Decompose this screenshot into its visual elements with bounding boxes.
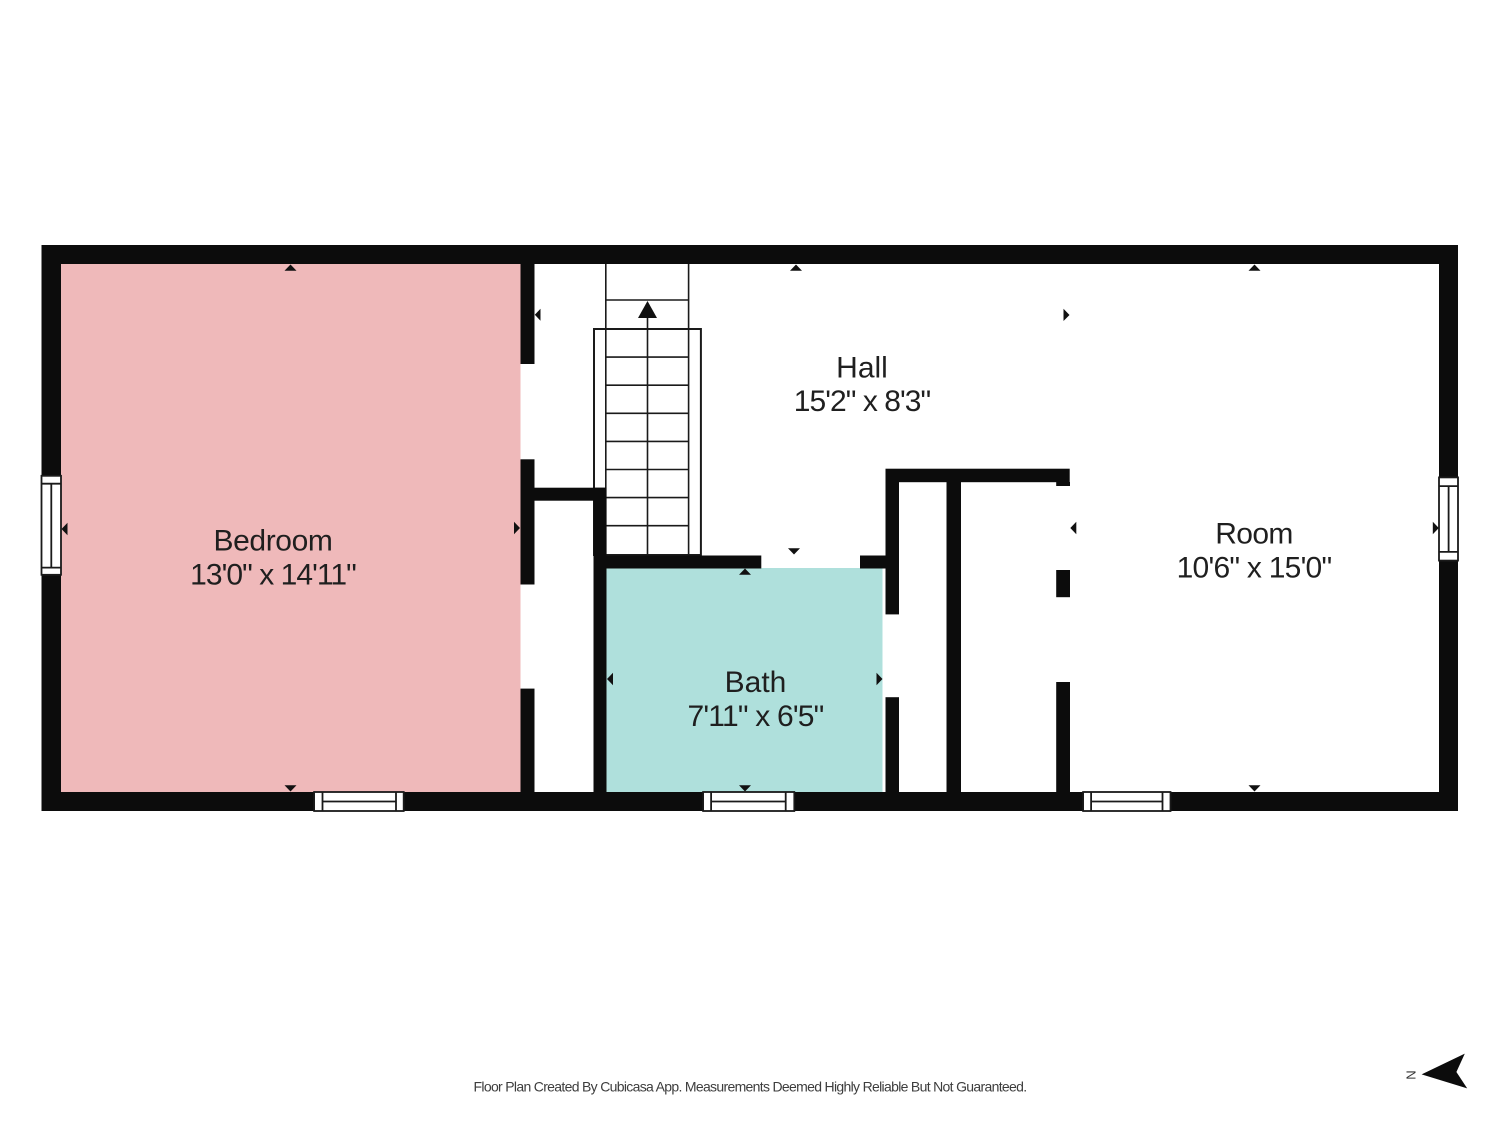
svg-text:N: N	[1404, 1070, 1419, 1079]
svg-text:15'2" x 8'3": 15'2" x 8'3"	[794, 385, 931, 418]
svg-text:7'11" x 6'5": 7'11" x 6'5"	[687, 700, 823, 733]
svg-text:10'6" x 15'0": 10'6" x 15'0"	[1177, 551, 1332, 584]
svg-text:Bedroom: Bedroom	[214, 525, 333, 558]
svg-text:Bath: Bath	[725, 666, 787, 699]
svg-text:Floor Plan Created By Cubicasa: Floor Plan Created By Cubicasa App. Meas…	[474, 1078, 1027, 1094]
svg-text:13'0" x 14'11": 13'0" x 14'11"	[190, 559, 356, 592]
svg-text:Room: Room	[1215, 517, 1293, 550]
svg-text:Hall: Hall	[836, 352, 888, 385]
